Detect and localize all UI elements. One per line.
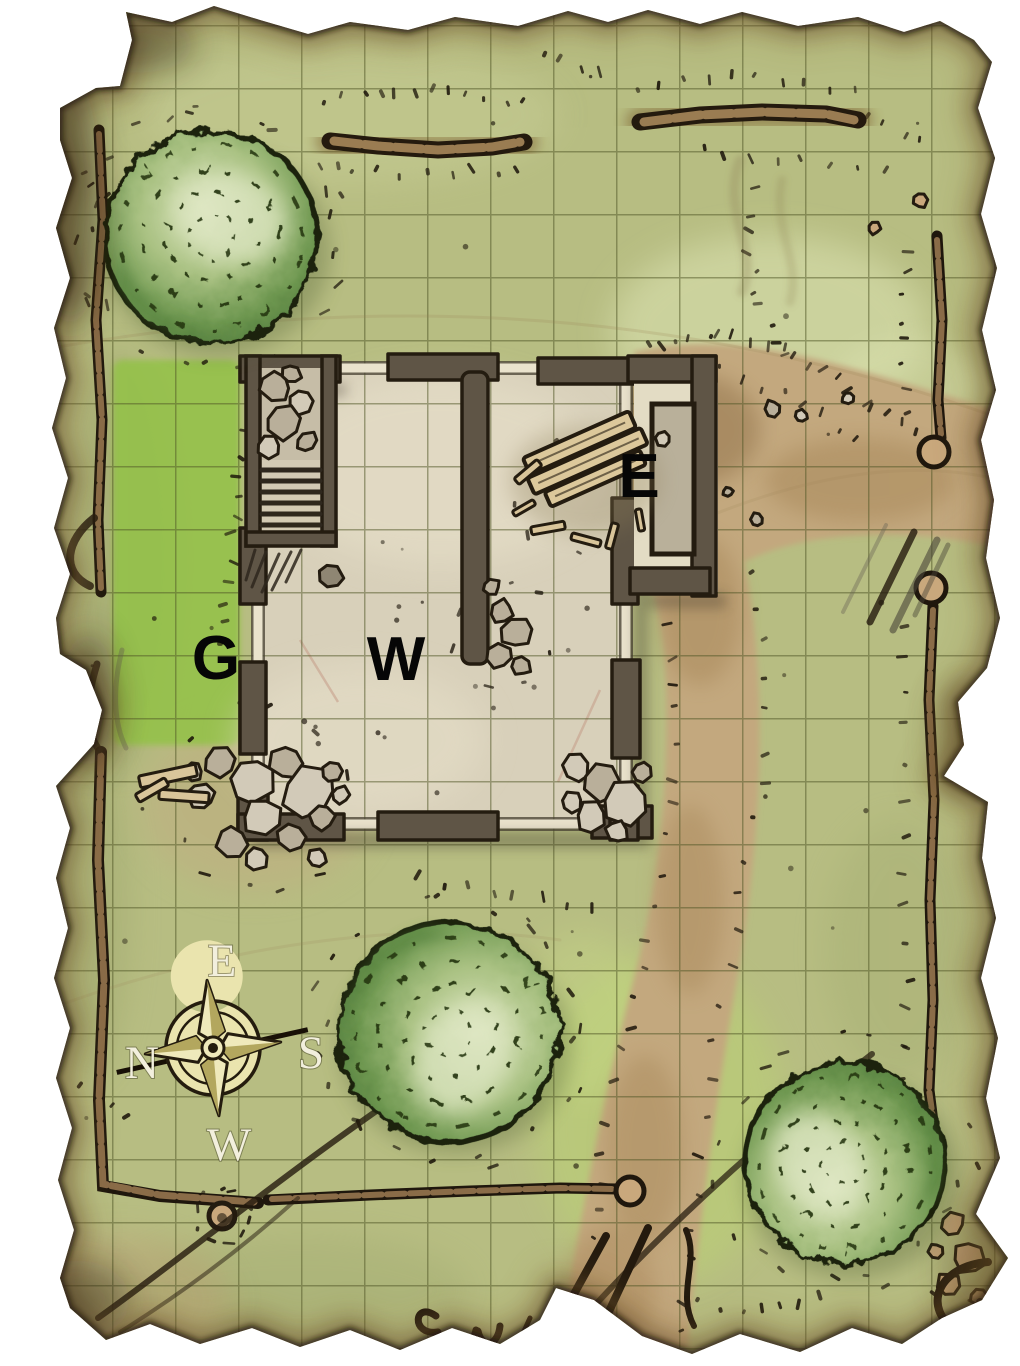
west-wall-2	[240, 662, 266, 754]
fence-post-ball	[616, 1177, 644, 1205]
compass-letter-top: E	[208, 935, 237, 987]
battle-map: E S W N G W E	[0, 0, 1020, 1366]
stone-wall-northeast	[640, 112, 858, 122]
label-E: E	[618, 442, 659, 511]
stair-room-south-wall	[246, 532, 336, 546]
compass-letter-left: N	[125, 1037, 159, 1089]
stair-room-east-wall	[322, 356, 336, 546]
label-W: W	[367, 625, 426, 694]
south-wall	[378, 812, 498, 840]
east-wall-2	[612, 660, 640, 758]
interior-wall	[462, 372, 488, 664]
compass-letter-bottom: W	[207, 1119, 252, 1171]
stone-wall-northwest	[330, 141, 524, 150]
fence-east-lower	[929, 606, 934, 1130]
fence-east-upper	[937, 236, 942, 438]
compass-letter-right: S	[298, 1027, 324, 1079]
label-G: G	[192, 624, 240, 693]
annex-south-wall	[630, 568, 710, 594]
fence-post-ball	[919, 437, 949, 467]
